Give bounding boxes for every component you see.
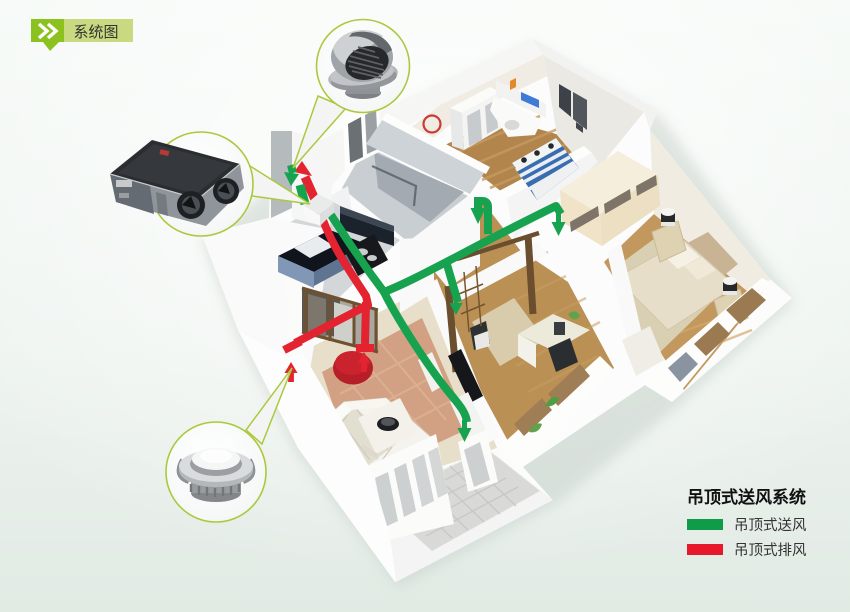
svg-text:系统图: 系统图 [73,24,118,41]
svg-text:吊顶式送风: 吊顶式送风 [734,517,807,534]
svg-text:吊顶式送风系统: 吊顶式送风系统 [687,487,806,507]
svg-text:吊顶式排风: 吊顶式排风 [734,542,807,559]
